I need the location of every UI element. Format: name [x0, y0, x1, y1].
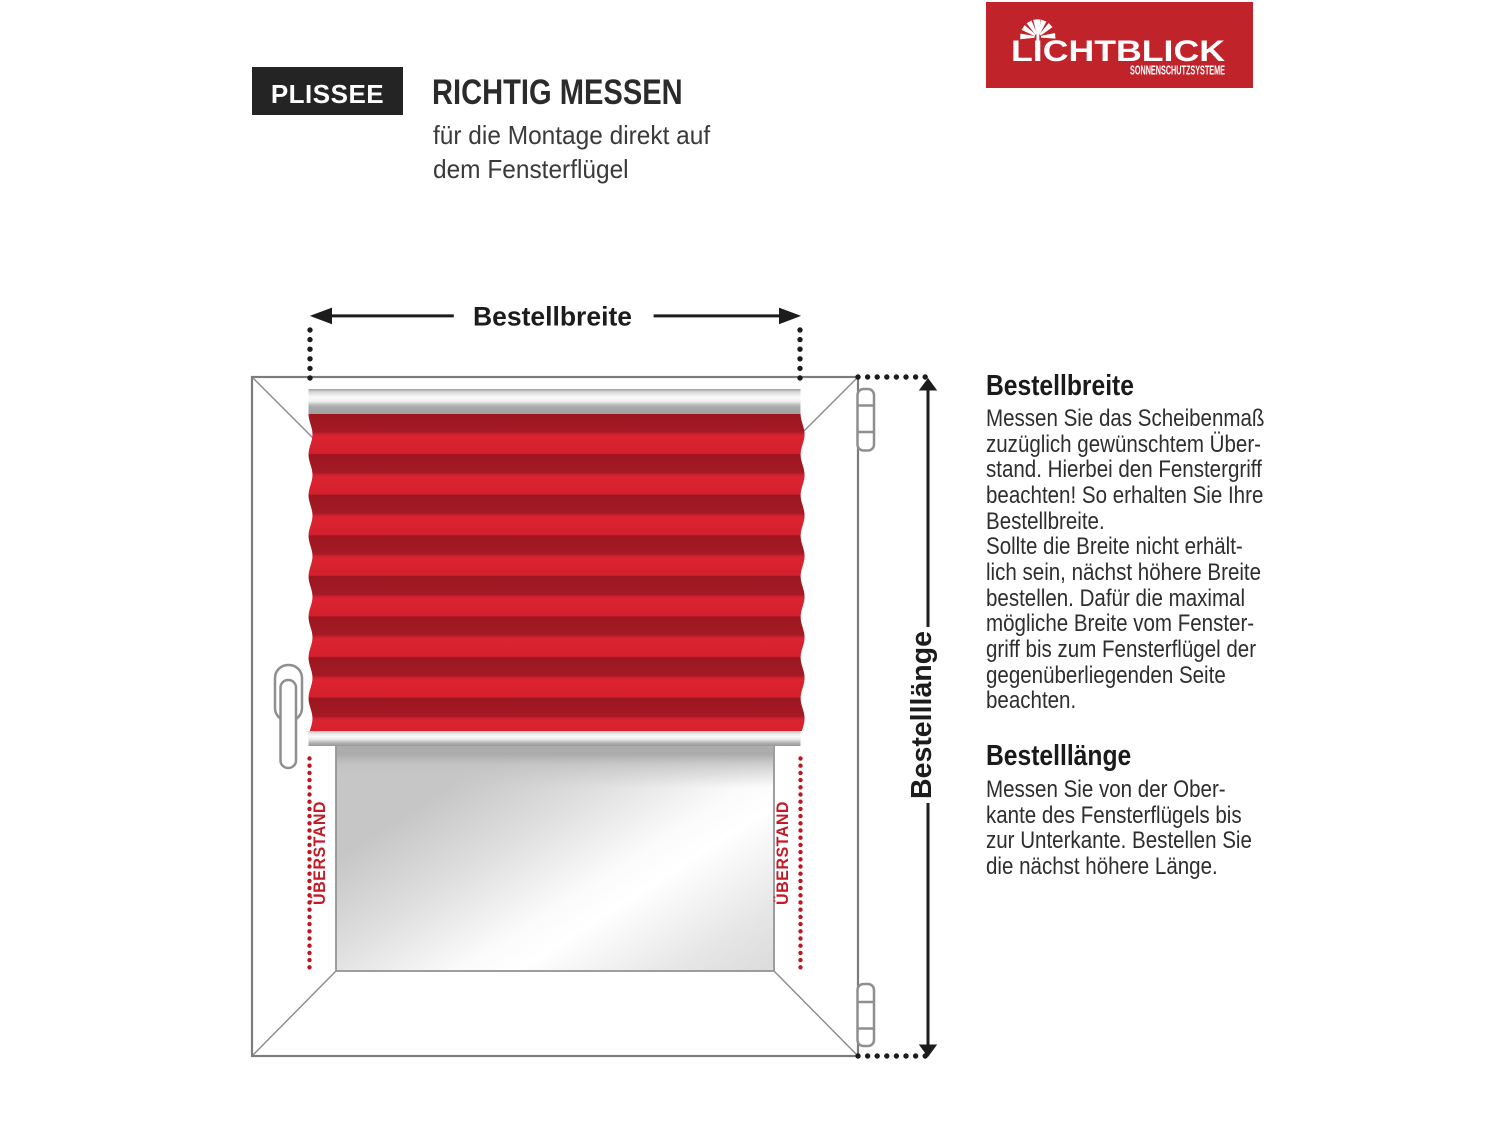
svg-text:ÜBERSTAND: ÜBERSTAND [773, 801, 792, 905]
svg-text:ÜBERSTAND: ÜBERSTAND [310, 801, 329, 905]
svg-text:Bestelllänge: Bestelllänge [906, 631, 938, 799]
svg-text:Bestellbreite: Bestellbreite [473, 302, 632, 332]
